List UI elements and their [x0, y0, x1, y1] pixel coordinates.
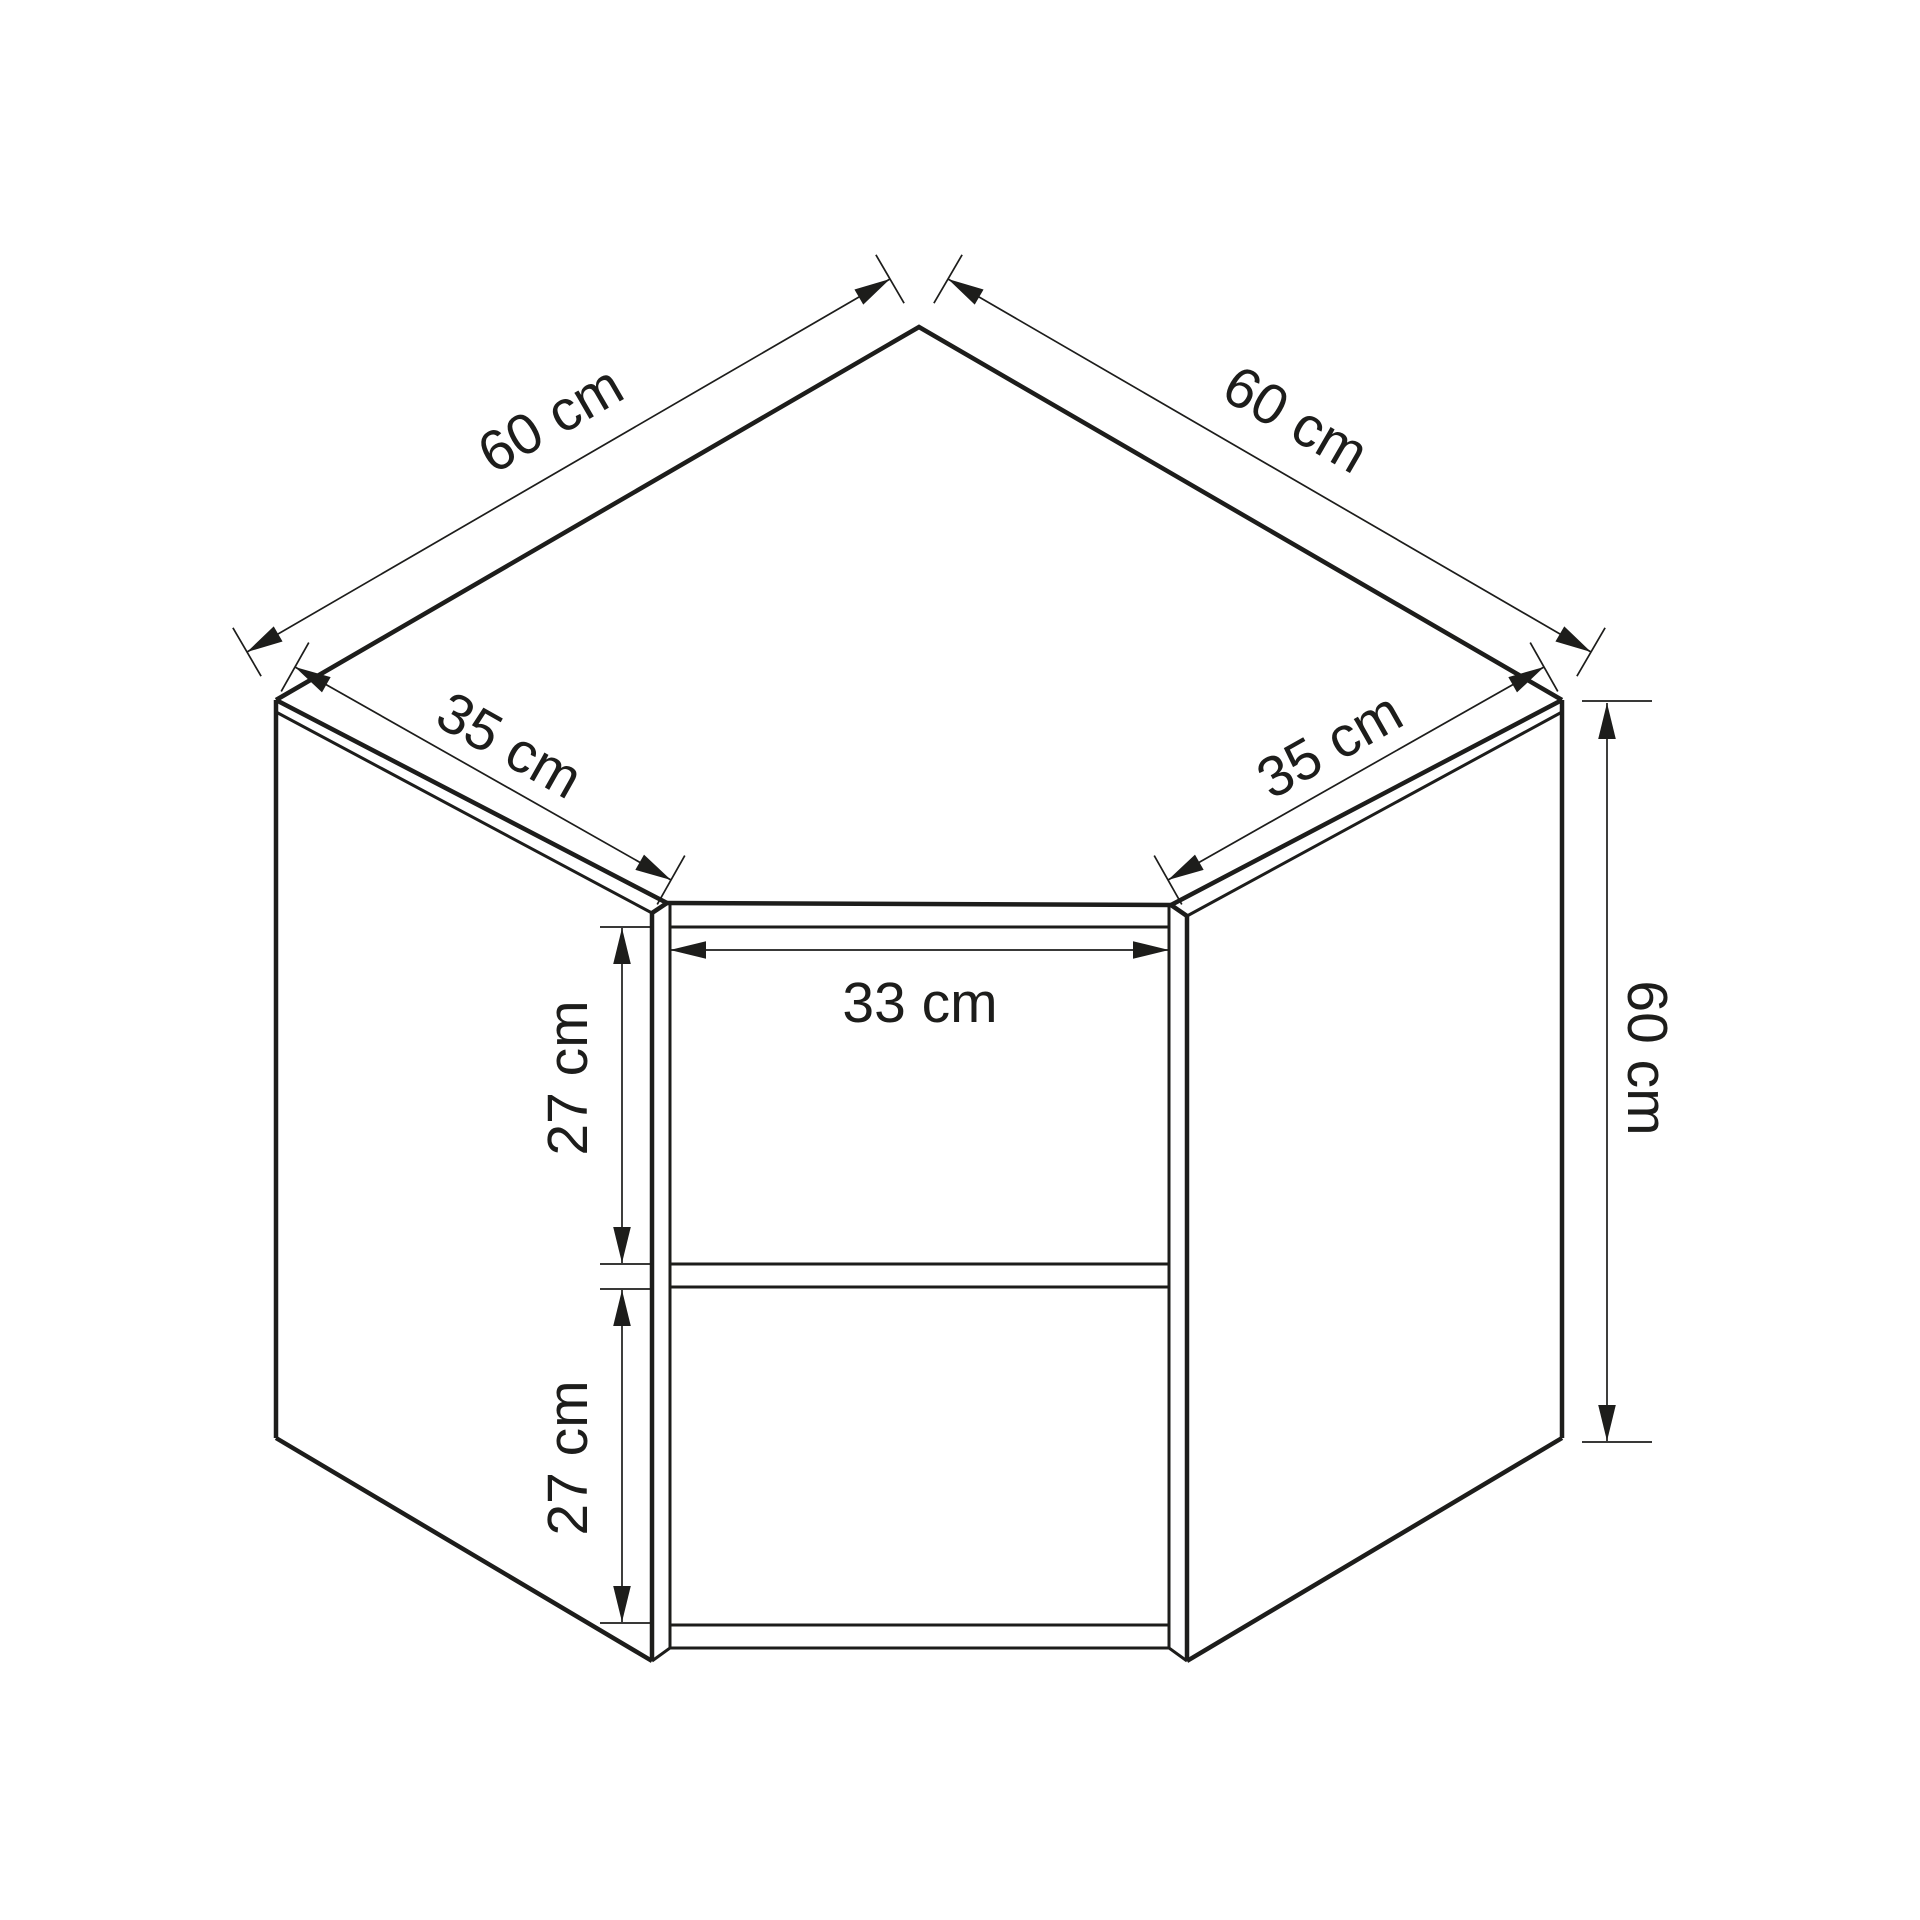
corner-cabinet-drawing: 60 cm 60 cm 35 cm 35 cm 33 cm: [0, 0, 1920, 1920]
dimension-end-tick: [1577, 628, 1605, 676]
dimension-end-tick: [1154, 856, 1182, 905]
dimension-top-right-60: 60 cm: [934, 255, 1605, 676]
dimension-end-tick: [233, 628, 261, 676]
dimension-end-tick: [657, 856, 685, 905]
dimension-end-tick: [876, 255, 904, 303]
diagram-canvas: 60 cm 60 cm 35 cm 35 cm 33 cm: [0, 0, 1920, 1920]
dimension-line: [247, 279, 890, 652]
dimension-label-right-height-60: 60 cm: [1615, 980, 1679, 1135]
dimension-label-lower-27: 27 cm: [536, 1380, 600, 1535]
front-right-stile-inner: [1169, 905, 1187, 1661]
dimension-label-top-left-60: 60 cm: [467, 353, 633, 486]
dimension-right-height-60: 60 cm: [1582, 701, 1679, 1442]
dimension-upper-27: 27 cm: [536, 927, 652, 1264]
dimension-opening-33: 33 cm: [670, 950, 1169, 1035]
cabinet-front-top-edge: [667, 903, 1171, 905]
dimension-label-upper-27: 27 cm: [536, 1000, 600, 1155]
dimension-top-left-60: 60 cm: [233, 255, 904, 676]
cabinet-top-outer-edges: [276, 327, 1562, 700]
dimension-lower-27: 27 cm: [536, 1289, 652, 1623]
dimension-right-35: 35 cm: [1154, 643, 1558, 905]
front-left-stile-inner: [652, 904, 670, 1661]
dimension-label-top-right-60: 60 cm: [1212, 353, 1378, 486]
dimension-left-35: 35 cm: [281, 643, 685, 905]
cabinet-right-bottom-edge: [1187, 1438, 1562, 1661]
dimension-line: [948, 279, 1591, 652]
dimension-end-tick: [934, 255, 962, 303]
dimension-label-opening-33: 33 cm: [842, 971, 997, 1035]
